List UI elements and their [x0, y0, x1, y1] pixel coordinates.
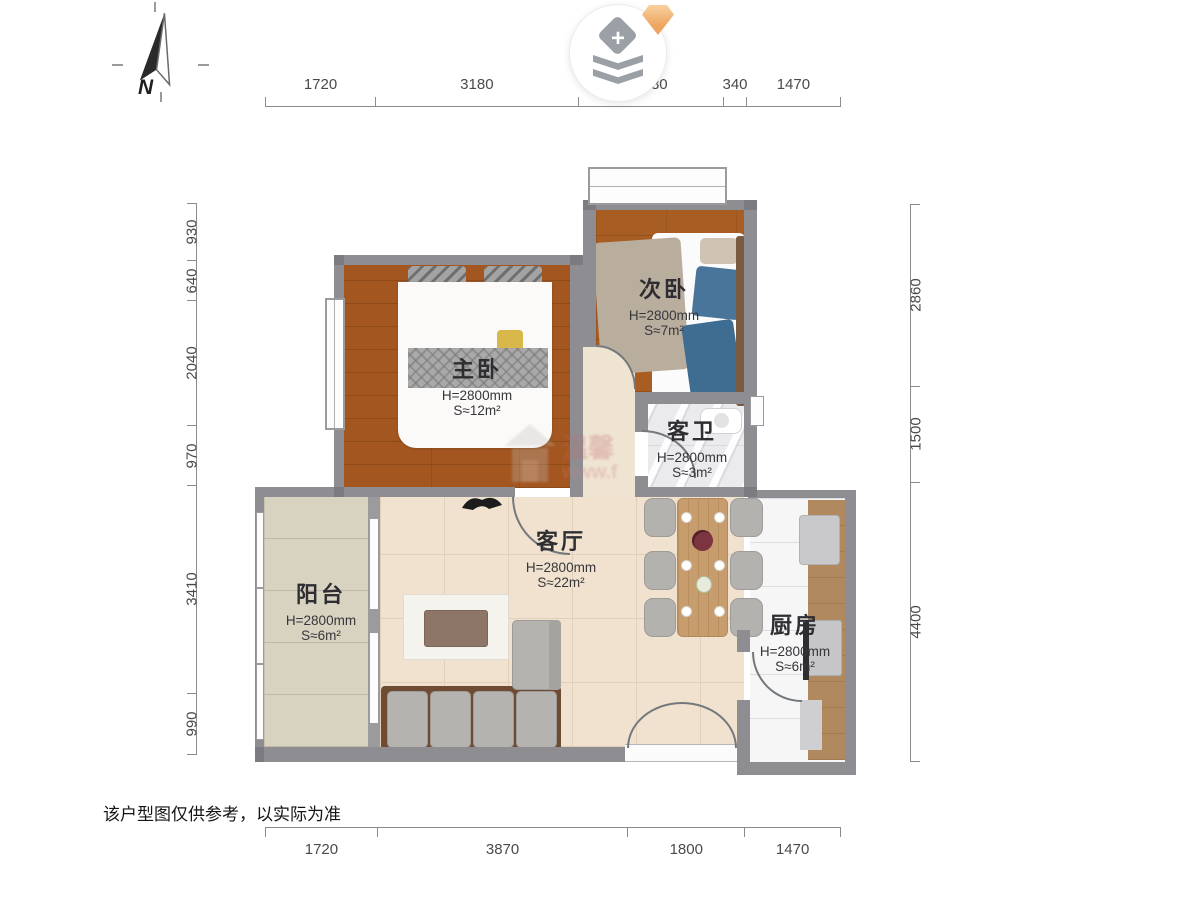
disclaimer-text: 该户型图仅供参考，以实际为准 [103, 800, 341, 825]
dim-value: 340 [723, 76, 748, 93]
room-height: H=2800mm [481, 560, 641, 575]
room-name: 厨房 [715, 608, 875, 640]
compass-north-label: N [138, 76, 153, 100]
wall-node [334, 487, 344, 497]
dim-segment: 1720 [265, 97, 375, 106]
dim-value: 1470 [776, 841, 809, 858]
sofa-cushion [387, 691, 428, 748]
plate [714, 512, 725, 523]
watermark-text: 温馨 [562, 428, 614, 465]
dim-segment: 970 [187, 425, 196, 485]
room-name: 次卧 [584, 272, 744, 304]
dim-value: 2860 [907, 279, 924, 312]
window-mullion [257, 663, 263, 665]
fruit-bowl [692, 530, 713, 551]
dim-value: 930 [183, 220, 200, 245]
wall [334, 487, 515, 497]
room-label-second: 次卧 H=2800mm S≈7m² [584, 272, 744, 338]
room-area: S≈7m² [584, 323, 744, 338]
room-name: 客厅 [481, 524, 641, 556]
floor-plan-canvas: 主卧 H=2800mm S≈12m² 次卧 H=2800mm S≈7m² 客卫 … [0, 0, 1200, 900]
wall [635, 392, 757, 404]
dim-segment: 340 [723, 97, 746, 106]
plus-icon: + [611, 27, 625, 51]
dim-segment: 1470 [746, 97, 840, 106]
dim-segment: 930 [187, 203, 196, 260]
room-name: 主卧 [397, 352, 557, 384]
dining-chair [644, 598, 676, 637]
dim-segment: 2860 [911, 204, 920, 386]
dim-segment: 2040 [187, 300, 196, 425]
bay-window [588, 167, 727, 205]
dim-value: 990 [183, 711, 200, 736]
watermark-url: www.f [562, 462, 617, 484]
compass-tick [112, 64, 123, 66]
room-area: S≈6m² [241, 628, 401, 643]
dining-chair [644, 498, 676, 537]
plate [681, 606, 692, 617]
sofa-cushion [516, 691, 557, 748]
dim-value: 1720 [305, 841, 338, 858]
dim-value: 1470 [777, 76, 810, 93]
house-icon [522, 460, 538, 482]
plate [681, 512, 692, 523]
wall-node [570, 255, 583, 265]
dining-chair [730, 551, 763, 590]
sofa-chaise-back [549, 620, 561, 690]
wall [255, 747, 625, 762]
wall [334, 255, 583, 265]
dim-segment: 3410 [187, 485, 196, 693]
wall [255, 487, 343, 497]
sliding-door-frame [370, 723, 378, 747]
layers-icon [593, 69, 643, 84]
dim-segment: 1800 [627, 828, 744, 837]
dim-segment: 990 [187, 693, 196, 754]
dim-top: 1720318022803401470 [265, 92, 841, 107]
dim-left: 93064020409703410990 [182, 203, 197, 755]
sofa-cushion [430, 691, 471, 748]
room-height: H=2800mm [715, 644, 875, 659]
sliding-door-frame [370, 497, 378, 519]
room-area: S≈12m² [397, 403, 557, 418]
wall-node [334, 255, 344, 265]
room-label-balcony: 阳台 H=2800mm S≈6m² [241, 577, 401, 643]
wall [737, 762, 856, 775]
flower-vase [696, 576, 712, 593]
tan-pillow [700, 238, 738, 264]
dim-segment: 1470 [744, 828, 840, 837]
dim-value: 3410 [183, 573, 200, 606]
plate [681, 560, 692, 571]
wall-node [255, 747, 264, 762]
coffee-table [424, 610, 488, 647]
compass-tick [198, 64, 209, 66]
room-height: H=2800mm [584, 308, 744, 323]
room-area: S≈22m² [481, 575, 641, 590]
dim-value: 1500 [907, 418, 924, 451]
dim-right: 286015004400 [910, 204, 925, 762]
room-height: H=2800mm [397, 388, 557, 403]
room-label-living: 客厅 H=2800mm S≈22m² [481, 524, 641, 590]
dim-segment: 3180 [375, 97, 578, 106]
compass [108, 0, 218, 110]
kitchen-sink [799, 515, 840, 565]
dim-segment: 4400 [911, 482, 920, 761]
watermark: 温馨 www.f [500, 420, 680, 498]
master-window [325, 298, 345, 430]
dim-value: 4400 [907, 605, 924, 638]
sofa-cushion [473, 691, 514, 748]
dim-value: 3870 [486, 841, 519, 858]
room-area: S≈6m² [715, 659, 875, 674]
dim-value: 2040 [183, 347, 200, 380]
wall-node [744, 487, 757, 497]
dim-bottom: 1720387018001470 [265, 827, 841, 842]
room-name: 阳台 [241, 577, 401, 609]
wall [748, 490, 845, 498]
room-height: H=2800mm [241, 613, 401, 628]
dim-value: 640 [183, 268, 200, 293]
plate [714, 560, 725, 571]
room-label-kitchen: 厨房 H=2800mm S≈6m² [715, 608, 875, 674]
dim-segment: 1720 [265, 828, 377, 837]
layers-icon [593, 55, 643, 70]
window-mullion [590, 186, 725, 187]
dim-segment: 1500 [911, 386, 920, 482]
dining-chair [730, 498, 763, 537]
house-icon [504, 424, 556, 446]
kitchen-appliance [800, 700, 822, 750]
dim-value: 3180 [460, 76, 493, 93]
room-label-master: 主卧 H=2800mm S≈12m² [397, 352, 557, 418]
dining-chair [644, 551, 676, 590]
dim-value: 1720 [304, 76, 337, 93]
dim-value: 970 [183, 443, 200, 468]
dim-segment: 3870 [377, 828, 627, 837]
dim-value: 1800 [670, 841, 703, 858]
window-mullion [334, 300, 335, 428]
wall-node [744, 200, 757, 210]
wall [737, 700, 750, 763]
dim-segment: 640 [187, 260, 196, 300]
